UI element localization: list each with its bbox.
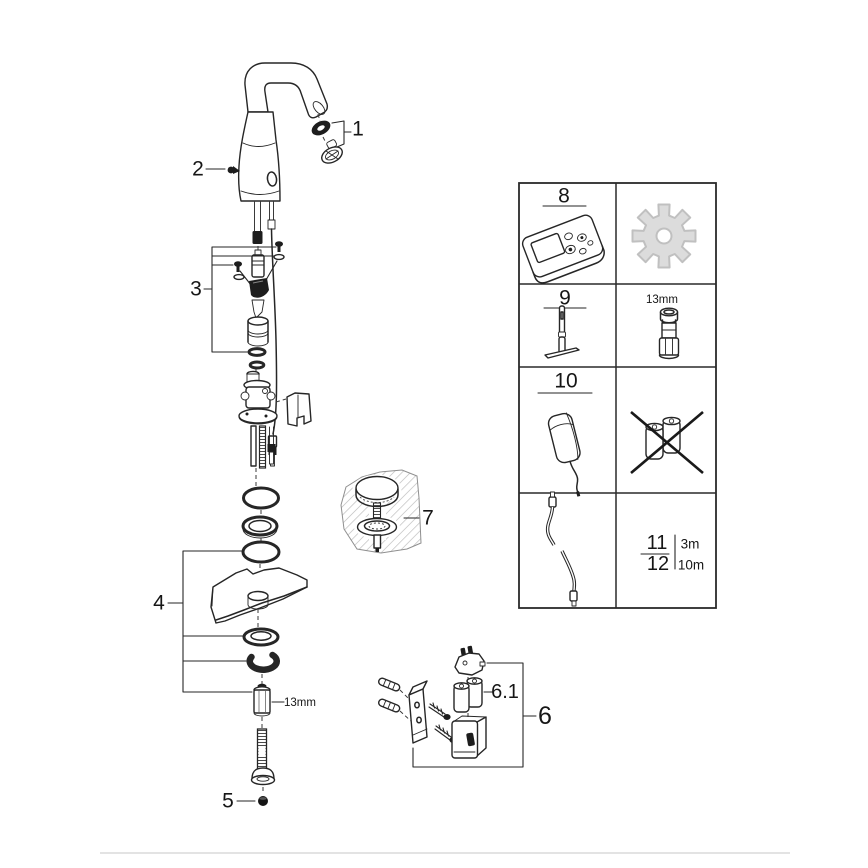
gear-icon	[633, 205, 696, 268]
washer-drawing	[244, 629, 278, 645]
remote-control-icon	[521, 213, 608, 285]
callout-6-1: 6.1	[484, 681, 519, 703]
part-6-battery-box-drawing	[378, 646, 486, 758]
wall-bracket-drawing	[409, 689, 427, 743]
part-7-drain-drawing	[341, 470, 421, 553]
threaded-adapter-drawing	[254, 684, 270, 716]
callout-2-label: 2	[192, 158, 204, 181]
sink-deck-drawing	[211, 568, 307, 630]
parts-diagram-page: 2 1 3	[0, 0, 868, 868]
callout-6-label: 6	[538, 702, 552, 730]
socket-size-label: 13mm	[646, 294, 678, 306]
callout-4-label: 4	[153, 592, 165, 615]
callout-3-label: 3	[190, 278, 202, 301]
table-item-11-number: 11	[647, 532, 668, 554]
part-6-1-battery-pack-drawing	[454, 678, 482, 712]
horseshoe-clip-drawing	[250, 655, 277, 684]
callout-6-1-label: 6.1	[491, 681, 519, 703]
adapter-size-label: 13mm	[284, 697, 316, 709]
mounting-tool-icon	[545, 306, 579, 358]
batteries-crossed-icon	[631, 412, 703, 473]
mounting-base-assembly-drawing	[239, 369, 311, 487]
callout-2: 2	[192, 158, 225, 181]
table-item-10-number: 10	[554, 370, 577, 393]
callout-5: 5	[222, 790, 255, 813]
callout-1: 1	[332, 118, 364, 148]
extension-cable-icon	[548, 492, 577, 606]
table-item-12-length: 10m	[678, 558, 704, 573]
callout-1-label: 1	[352, 118, 364, 141]
callout-5-label: 5	[222, 790, 234, 813]
threaded-rod-drawing	[252, 717, 275, 794]
exploded-diagram-canvas: 2 1 3	[0, 0, 868, 868]
power-supply-icon	[547, 412, 591, 499]
table-item-8-number: 8	[558, 185, 570, 208]
retaining-clip-drawing	[287, 393, 311, 426]
table-item-11-length: 3m	[681, 537, 700, 552]
part-5-nut-drawing	[258, 796, 268, 806]
accessory-table: 8 9 13mm	[519, 183, 716, 608]
socket-wrench-icon	[660, 308, 679, 358]
table-item-12-number: 12	[647, 553, 669, 575]
cable-length-options: 11 12 3m 10m	[641, 532, 704, 575]
callout-7-label: 7	[422, 507, 434, 530]
adapter-size-annotation: 13mm	[272, 697, 316, 709]
